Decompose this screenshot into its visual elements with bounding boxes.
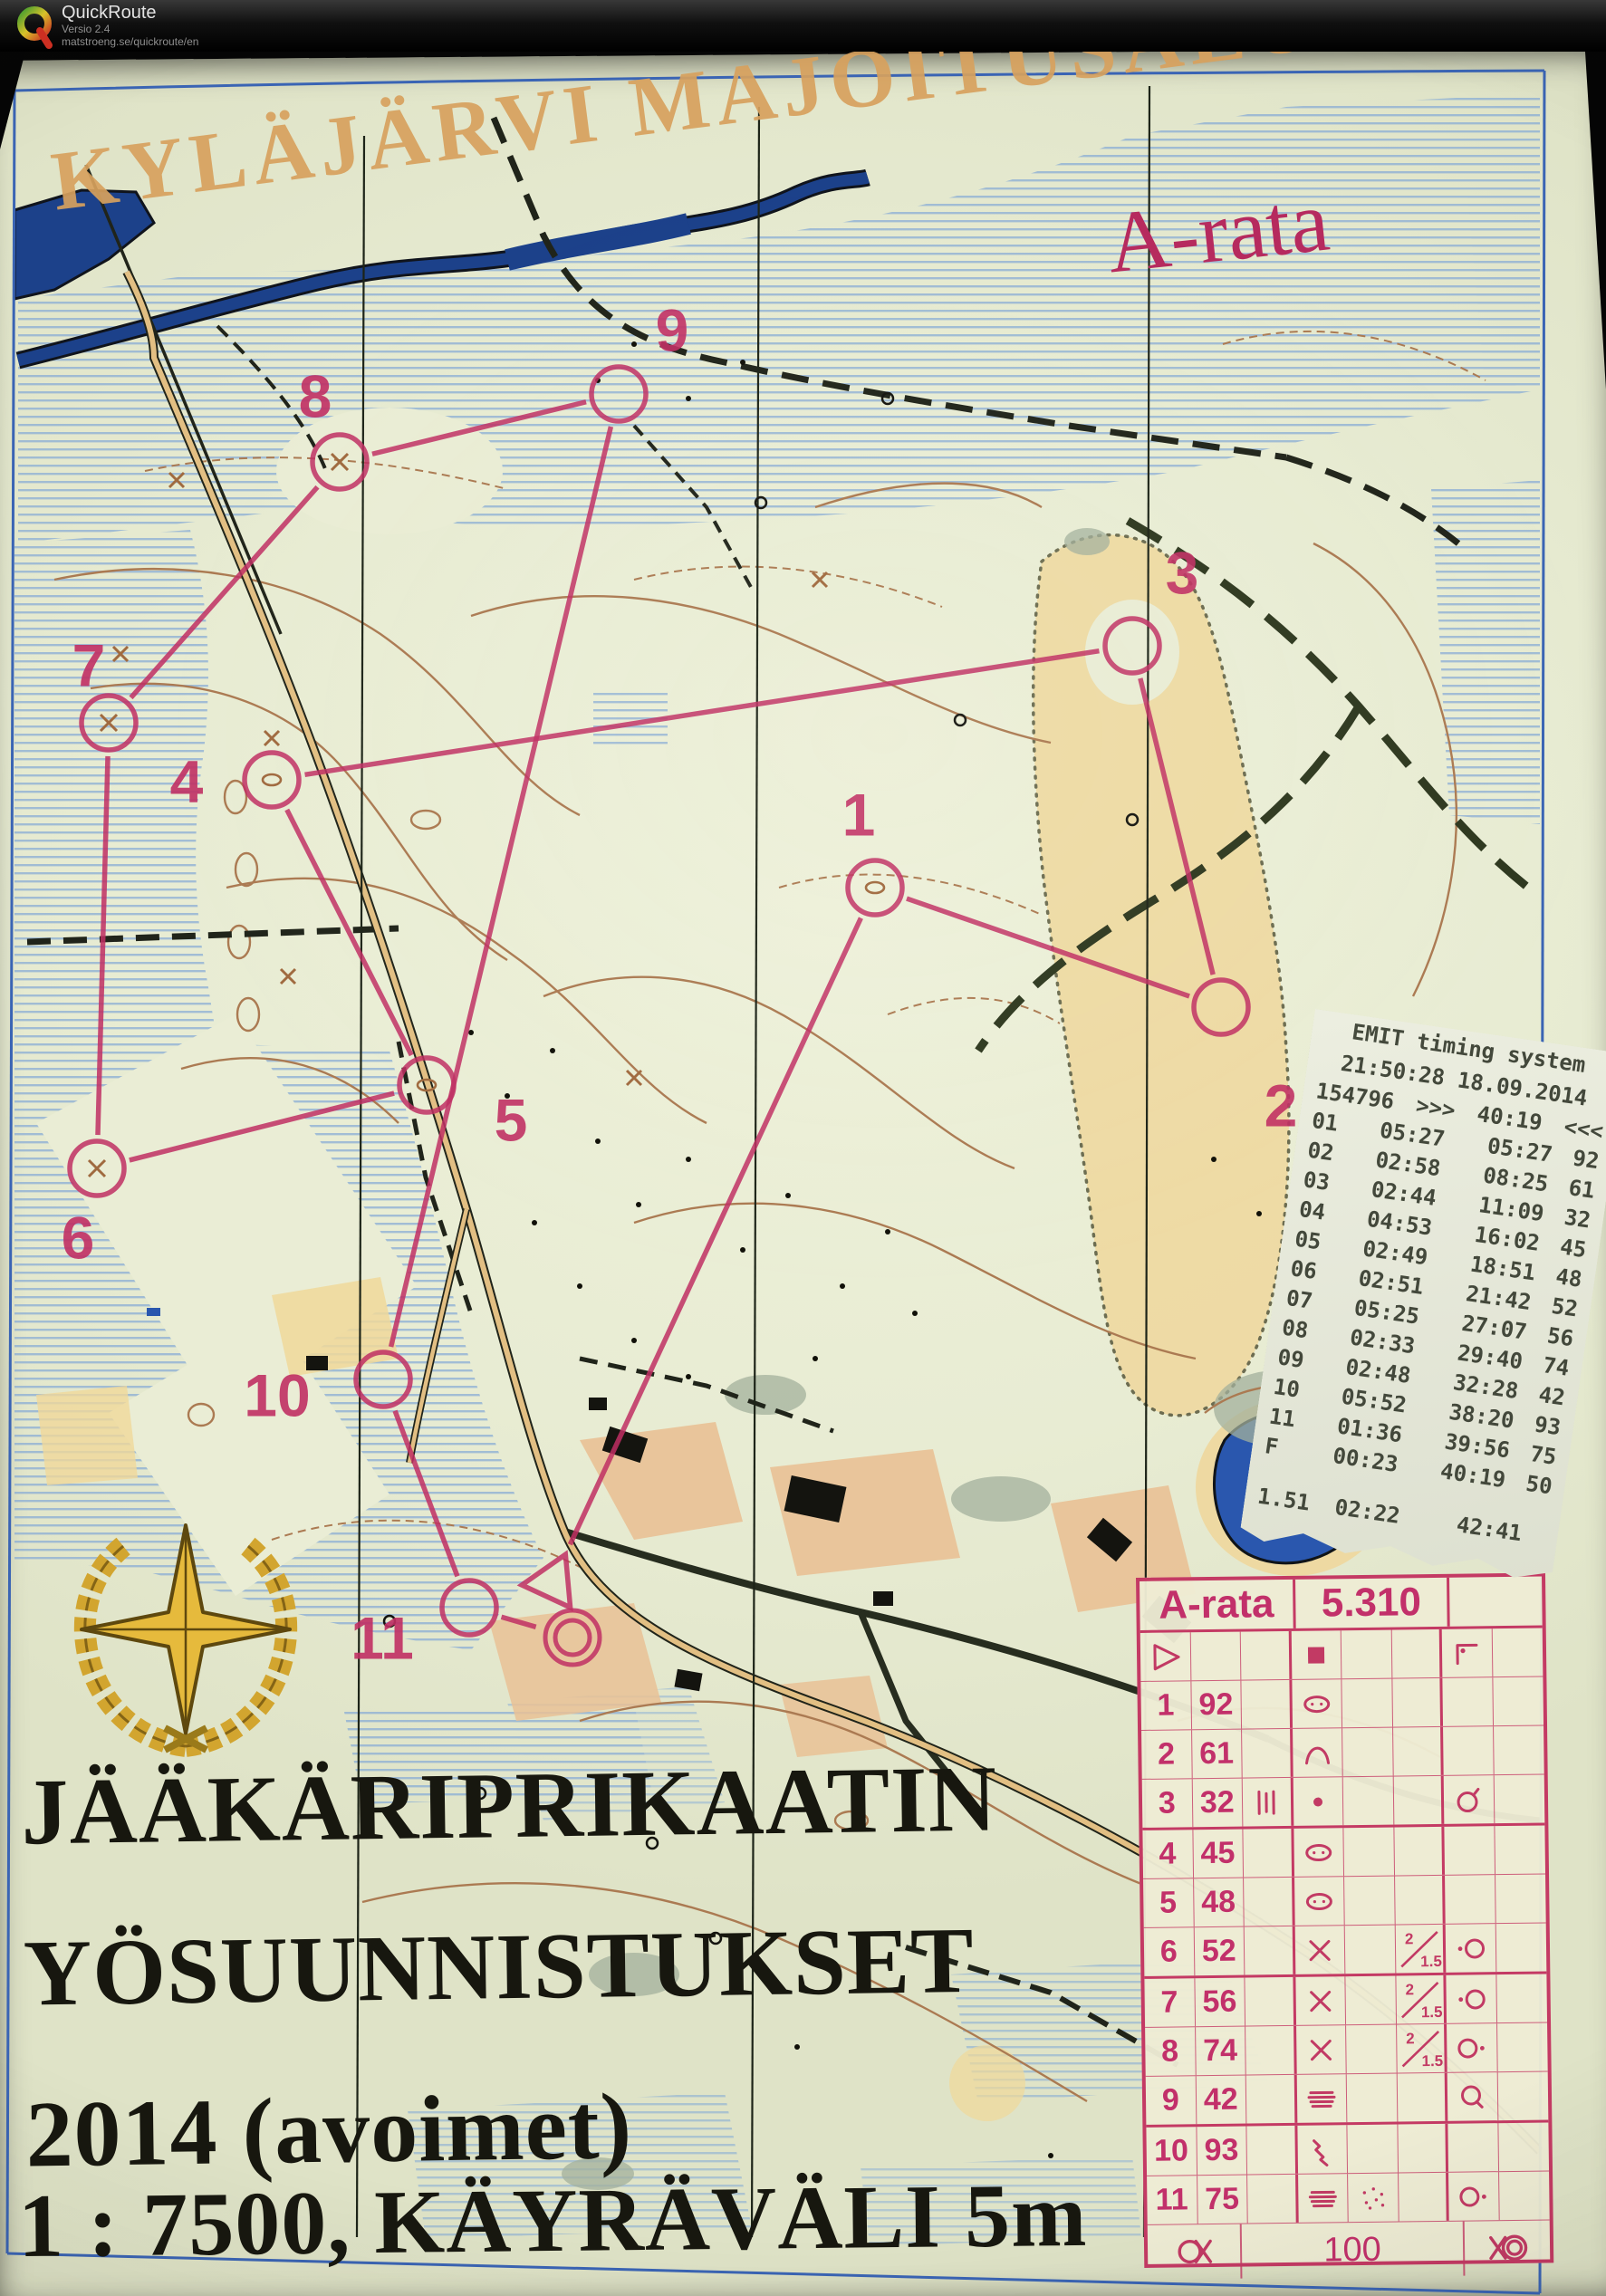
quickroute-window: QuickRoute Versio 2.4 matstroeng.se/quic… xyxy=(0,0,1606,2296)
card-row-control-2: 261 xyxy=(1141,1726,1544,1780)
quickroute-logo xyxy=(14,4,56,51)
map-scale-text: 1 : 7500, KÄYRÄVÄLI 5m xyxy=(17,2163,1087,2278)
event-title-block: JÄÄKÄRIPRIKAATIN YÖSUUNNISTUKSET 2014 (a… xyxy=(20,1719,1003,2215)
card-header-blank xyxy=(1449,1577,1543,1627)
svg-text:2: 2 xyxy=(1406,2030,1415,2047)
app-url: matstroeng.se/quickroute/en xyxy=(62,36,198,49)
card-row-control-8: 87421.5 xyxy=(1145,2022,1548,2076)
map-photo-canvas[interactable]: 1234567891011 KYLÄJÄRVI MAJOITUSALUE A-r… xyxy=(0,0,1606,2296)
app-version: Versio 2.4 xyxy=(62,24,198,36)
card-course-length: 5.310 xyxy=(1295,1578,1450,1628)
control-description-card: A-rata 5.310 19226133244554865221.575621… xyxy=(1136,1572,1553,2267)
card-row-control-9: 942 xyxy=(1146,2071,1549,2127)
svg-text:1.5: 1.5 xyxy=(1421,2003,1443,2020)
card-row-control-11: 1175 xyxy=(1147,2171,1550,2224)
svg-text:1.5: 1.5 xyxy=(1420,1952,1442,1969)
card-row-control-7: 75621.5 xyxy=(1144,1974,1547,2027)
card-row-control-4: 445 xyxy=(1142,1826,1545,1879)
taped-route-start-icon xyxy=(1148,2224,1243,2280)
finish-icon xyxy=(1463,2220,1551,2275)
receipt-split-rows: 0105:2705:27920202:5808:25610302:4411:09… xyxy=(1250,1104,1606,1504)
card-row-start xyxy=(1140,1628,1543,1682)
card-row-control-1: 192 xyxy=(1140,1677,1543,1731)
card-rows: 19226133244554865221.575621.587421.59421… xyxy=(1140,1628,1550,2225)
receipt-summary-pace: 02:22 xyxy=(1332,1492,1436,1536)
card-row-control-10: 1093 xyxy=(1146,2122,1549,2176)
wreath-star-emblem xyxy=(47,1491,324,1772)
card-footer: 100 xyxy=(1148,2220,1551,2279)
card-finish-distance: 100 xyxy=(1242,2222,1464,2279)
card-row-control-3: 332 xyxy=(1142,1775,1545,1830)
svg-text:2: 2 xyxy=(1405,1981,1414,1998)
app-title: QuickRoute xyxy=(62,3,198,24)
titlebar: QuickRoute Versio 2.4 matstroeng.se/quic… xyxy=(0,0,1606,52)
receipt-summary-dist: 1.51 xyxy=(1255,1481,1337,1523)
card-row-control-6: 65221.5 xyxy=(1144,1923,1547,1978)
card-header: A-rata 5.310 xyxy=(1140,1577,1543,1633)
svg-text:1.5: 1.5 xyxy=(1421,2051,1443,2069)
card-course-name: A-rata xyxy=(1140,1580,1296,1630)
card-row-control-5: 548 xyxy=(1143,1875,1546,1928)
event-line-2: YÖSUUNNISTUKSET xyxy=(23,1879,1001,2054)
svg-text:2: 2 xyxy=(1405,1930,1414,1947)
receipt-summary-total: 42:41 xyxy=(1431,1506,1547,1552)
